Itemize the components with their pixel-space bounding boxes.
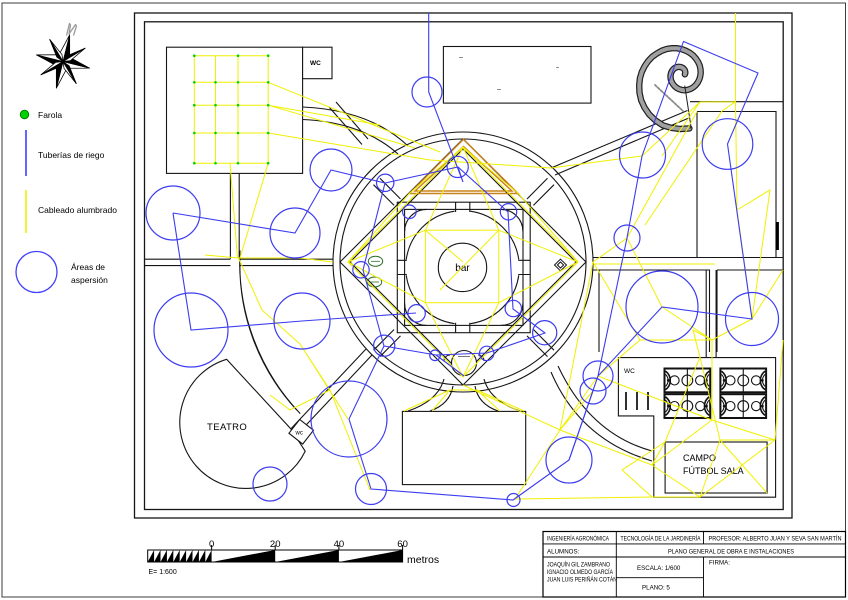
svg-text:wc: wc	[295, 431, 303, 437]
svg-text:WC: WC	[624, 368, 635, 375]
svg-text:TECNOLOGÍA DE LA JARDINERÍA: TECNOLOGÍA DE LA JARDINERÍA	[621, 536, 702, 543]
svg-text:ESCALA: 1/600: ESCALA: 1/600	[637, 565, 681, 572]
svg-text:Áreas de: Áreas de	[71, 262, 105, 272]
svg-text:Farola: Farola	[38, 110, 62, 120]
svg-text:metros: metros	[407, 554, 439, 566]
svg-text:Cableado alumbrado: Cableado alumbrado	[38, 205, 117, 215]
svg-text:PROFESOR: ALBERTO JUAN Y SEVA: PROFESOR: ALBERTO JUAN Y SEVA SAN MARTÍN	[709, 536, 842, 543]
svg-text:CAMPO: CAMPO	[683, 453, 716, 463]
svg-text:20: 20	[270, 539, 281, 550]
svg-text:40: 40	[334, 539, 345, 550]
svg-text:aspersión: aspersión	[71, 275, 108, 285]
svg-text:PLANO GENERAL DE OBRA E INSTAL: PLANO GENERAL DE OBRA E INSTALACIONES	[668, 549, 794, 556]
svg-text:Tuberías de riego: Tuberías de riego	[38, 150, 105, 160]
svg-text:JUAN LUIS PERIÑÁN COTÁN: JUAN LUIS PERIÑÁN COTÁN	[547, 577, 617, 584]
svg-text:INGENIERÍA AGRONÓMICA: INGENIERÍA AGRONÓMICA	[547, 536, 610, 543]
svg-text:0: 0	[209, 539, 214, 550]
svg-text:E= 1:600: E= 1:600	[149, 569, 177, 576]
svg-text:PLANO: 5: PLANO: 5	[642, 585, 670, 592]
svg-text:ALUMNOS:: ALUMNOS:	[547, 549, 580, 556]
svg-text:TEATRO: TEATRO	[207, 422, 247, 433]
svg-text:WC: WC	[310, 60, 321, 67]
svg-text:FIRMA:: FIRMA:	[709, 560, 730, 567]
svg-text:IGNACIO OLMEDO GARCÍA: IGNACIO OLMEDO GARCÍA	[547, 569, 614, 576]
svg-text:JOAQUÍN GIL ZAMBRANO: JOAQUÍN GIL ZAMBRANO	[547, 562, 610, 569]
svg-text:60: 60	[397, 539, 408, 550]
